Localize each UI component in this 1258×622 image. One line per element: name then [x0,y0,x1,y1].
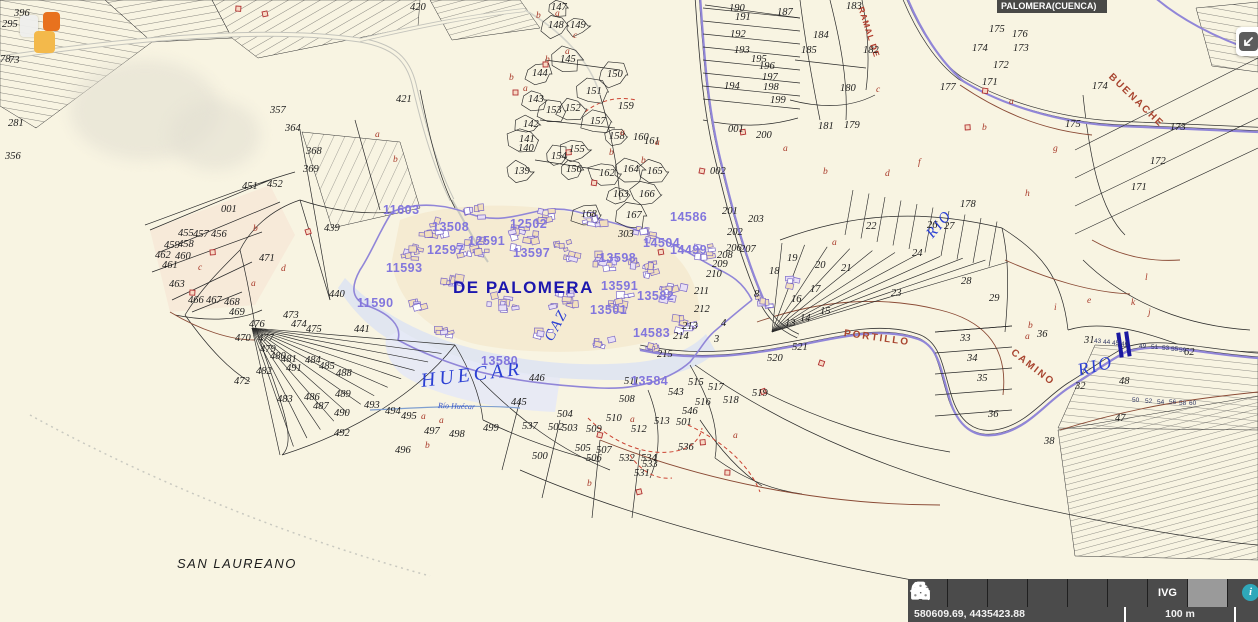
strip-parcel-number-label: 45 [1112,340,1119,347]
status-bar: 580609.69, 4435423.88 100 m [908,607,1258,622]
parcel-number-label: 166 [639,189,655,200]
parcel-number-label: 148 [548,20,564,31]
subparcel-letter-label: a [655,138,660,148]
parcel-number-label: 475 [306,324,322,335]
parcel-number-label: 153 [546,105,562,116]
point-query-button[interactable]: P [1108,579,1147,607]
subparcel-letter-label: a [630,415,635,425]
parcel-number-label: 181 [818,121,834,132]
subparcel-letter-label: g [1053,144,1058,154]
strip-parcel-number-label: 58 [1179,400,1186,407]
subparcel-letter-label: b [609,148,614,158]
parcel-number-label: 456 [211,229,227,240]
parcel-number-label: 32 [1075,381,1086,392]
subparcel-letter-label: d [281,264,286,274]
parcel-number-label: 504 [557,409,573,420]
parcel-number-label: 446 [529,373,545,384]
parcel-number-label: 500 [532,451,548,462]
parcel-number-label: 441 [354,324,370,335]
fullscreen-card [1236,27,1258,56]
watermark-shape [170,100,260,170]
subparcel-letter-label: b [253,224,258,234]
parcel-number-label: 143 [528,94,544,105]
urban-parcel-number-label: 13591 [601,279,638,293]
parcel-number-label: 172 [1150,156,1166,167]
parcel-number-label: 515 [688,377,704,388]
parcel-number-label: 507 [596,445,612,456]
parcel-number-label: 35 [977,373,988,384]
subparcel-letter-label: b [509,73,514,83]
parcel-number-label: 470 [235,333,251,344]
subparcel-letter-label: k [1131,298,1135,308]
parcel-number-label: 141 [519,134,535,145]
strip-parcel-number-label: 46 [1121,341,1128,348]
parcel-number-label: 194 [724,81,740,92]
strip-parcel-number-label: 49 [1139,343,1146,350]
map-viewport[interactable]: DE PALOMERASAN LAUREANOHUECARCAZRIORIORí… [0,0,1258,622]
parcel-number-label: 150 [607,69,623,80]
parcel-number-label: 474 [291,319,307,330]
subparcel-letter-label: j [1148,308,1151,318]
parcel-number-label: 28 [961,276,972,287]
parcel-number-label: 199 [770,95,786,106]
subparcel-letter-label: b [587,479,592,489]
parcel-number-label: 4 [721,318,726,329]
parcel-number-label: 151 [586,86,602,97]
parcel-number-label: 157 [590,116,606,127]
parcel-number-label: 163 [613,189,629,200]
subparcel-letter-label: a [565,47,570,57]
parcel-number-label: 214 [673,331,689,342]
parcel-number-label: 179 [844,120,860,131]
parcel-number-label: 172 [993,60,1009,71]
parcel-number-label: 537 [522,421,538,432]
parcel-number-label: 22 [866,221,877,232]
parcel-number-label: 466 [188,295,204,306]
parcel-number-label: 26 [927,220,938,231]
parcel-number-label: 457 [193,229,209,240]
parcel-number-label: 471 [259,253,275,264]
subparcel-letter-label: a [1009,97,1014,107]
cartography-button[interactable] [1188,579,1227,607]
urban-parcel-number-label: 13598 [599,251,636,265]
measure-button[interactable] [1028,579,1067,607]
strip-parcel-number-label: 43 [1094,338,1101,345]
parcel-number-label: 19 [787,253,798,264]
parcel-number-label: 178 [960,199,976,210]
parcel-number-label: 482 [256,366,272,377]
parcel-number-label: 002 [710,166,726,177]
subparcel-letter-label: f [918,158,921,168]
urban-parcel-number-label: 11593 [386,261,423,275]
parcel-number-label: 149 [570,20,586,31]
urban-parcel-number-label: 13582 [637,289,674,303]
parcel-number-label: 452 [267,179,283,190]
parcel-number-label: 36 [988,409,999,420]
parcel-number-label: 467 [206,295,222,306]
urban-parcel-number-label: 13580 [481,354,518,368]
parcel-number-label: 197 [762,72,778,83]
subparcel-letter-label: b [393,155,398,165]
parcel-number-label: 18 [769,266,780,277]
parcel-number-label: 490 [334,408,350,419]
subparcel-letter-label: c [198,263,202,273]
urban-parcel-number-label: 13508 [432,220,469,234]
subparcel-letter-label: a [421,412,426,422]
parcel-number-label: 503 [562,423,578,434]
parcel-number-label: 543 [668,387,684,398]
subparcel-letter-label: b [1028,321,1033,331]
parcel-number-label: 177 [940,82,956,93]
urban-parcel-number-label: 11590 [357,296,394,310]
parcel-number-label: 546 [682,406,698,417]
parcel-number-label: 445 [511,397,527,408]
parcel-number-label: 155 [569,144,585,155]
parcel-number-label: 508 [619,394,635,405]
subparcel-letter-label: a [733,431,738,441]
parcel-number-label: 195 [751,54,767,65]
parcel-number-label: 190 [729,3,745,14]
parcel-number-label: 185 [801,45,817,56]
diagonal-arrow-icon [1239,32,1258,51]
parcel-number-label: 202 [727,227,743,238]
parcel-number-label: 34 [967,353,978,364]
parcel-number-label: 439 [324,223,340,234]
parcel-number-label: 193 [734,45,750,56]
subparcel-letter-label: a [439,416,444,426]
parcel-number-label: 476 [249,319,265,330]
parcel-number-label: 496 [395,445,411,456]
parcel-number-label: 215 [657,349,673,360]
parcel-number-label: 15 [820,306,831,317]
parcel-number-label: 493 [364,400,380,411]
print-button[interactable] [1068,579,1107,607]
parcel-number-label: 396 [14,8,30,19]
parcel-number-label: 210 [706,269,722,280]
parcel-number-label: 33 [960,333,971,344]
subparcel-letter-label: i [1054,303,1057,313]
parcel-number-label: 187 [777,7,793,18]
parcel-number-label: 536 [678,442,694,453]
ivg-button-label: IVG [1158,587,1177,599]
parcel-number-label: 421 [396,94,412,105]
parcel-number-label: 20 [815,260,826,271]
subparcel-letter-label: b [982,123,987,133]
strip-parcel-number-label: 55 [1171,346,1178,353]
parcel-number-label: 142 [523,119,539,130]
map-marker-yellow [34,31,55,53]
parcel-number-label: 487 [313,401,329,412]
subparcel-letter-label: a [783,144,788,154]
info-circle-icon: i [1242,584,1258,601]
parcel-number-label: 420 [410,2,426,13]
parcel-number-label: 23 [891,288,902,299]
zoom-search-button[interactable] [948,579,987,607]
subparcel-letter-label: a [832,238,837,248]
status-bar-spacer [1236,607,1258,622]
parcel-number-label: 3 [714,334,719,345]
parcel-number-label: 176 [1012,29,1028,40]
subparcel-letter-label: b [536,11,541,21]
subparcel-letter-label: a [620,128,625,138]
subparcel-letter-label: h [1025,189,1030,199]
place-label: SAN LAUREANO [177,556,297,571]
urban-parcel-number-label: 12597 [427,243,464,257]
subparcel-letter-label: e [1087,296,1091,306]
parcel-number-label: 495 [401,411,417,422]
parcel-number-label: 184 [813,30,829,41]
urban-parcel-number-label: 14583 [633,326,670,340]
parcel-number-label: 173 [1013,43,1029,54]
parcel-number-label: 001 [728,124,744,135]
parcel-number-label: 518 [723,395,739,406]
parcel-number-label: 369 [303,164,319,175]
parcel-number-label: 36 [1037,329,1048,340]
collapse-map-button[interactable] [1239,32,1258,51]
parcel-number-label: 520 [767,353,783,364]
parcel-number-label: 458 [178,239,194,250]
parcel-number-label: 492 [334,428,350,439]
subparcel-letter-label: b [823,167,828,177]
subparcel-letter-label: a [251,279,256,289]
subparcel-letter-label: a [375,130,380,140]
parcel-number-label: 211 [694,286,709,297]
parcel-number-label: 517 [708,382,724,393]
parcel-number-label: 29 [989,293,1000,304]
parcel-number-label: 156 [566,164,582,175]
parcel-number-label: 534 [641,453,657,464]
subparcel-letter-label: b [641,156,646,166]
parcel-number-label: 168 [581,209,597,220]
map-toolbar: P IVG i [908,579,1258,607]
parcel-number-label: 27 [944,221,955,232]
parcel-number-label: 295 [2,19,18,30]
parcel-number-label: 477 [258,333,274,344]
urban-parcel-number-label: 14499 [670,243,707,257]
parcel-number-label: 154 [551,151,567,162]
parcel-number-label: 512 [631,424,647,435]
parcel-number-label: 16 [791,294,802,305]
parcel-number-label: 521 [792,342,808,353]
parcel-number-label: 485 [319,361,335,372]
urban-parcel-number-label: 13597 [513,246,550,260]
strip-parcel-number-label: 50 [1132,397,1139,404]
urban-parcel-number-label: 12591 [468,234,505,248]
scale-bar: 100 m [1124,607,1236,622]
place-label: DE PALOMERA [453,278,594,298]
parcel-number-label: 13 [785,318,796,329]
parcel-number-label: 159 [618,101,634,112]
parcel-number-label: 21 [841,263,852,274]
subparcel-letter-label: b [545,55,550,65]
urban-parcel-number-label: 12502 [510,217,547,231]
parcel-number-label: 164 [623,164,639,175]
subparcel-letter-label: l [1145,273,1148,283]
parcel-number-label: 519 [752,388,768,399]
ivg-button[interactable]: IVG [1148,579,1187,607]
parcel-number-label: 171 [1131,182,1147,193]
parcel-number-label: 498 [449,429,465,440]
layers-button[interactable] [988,579,1027,607]
map-marker-orange [43,12,60,31]
strip-parcel-number-label: 44 [1103,339,1110,346]
parcel-number-label: 001 [221,204,237,215]
subparcel-letter-label: a [523,84,528,94]
dice-icon [908,579,933,603]
parcel-number-label: 165 [647,166,663,177]
parcel-number-label: 501 [676,417,692,428]
parcel-number-label: 207 [740,244,756,255]
parcel-number-label: 451 [242,181,258,192]
parcel-number-label: 364 [285,123,301,134]
subparcel-letter-label: d [885,169,890,179]
parcel-number-label: 357 [270,105,286,116]
parcel-number-label: 8 [754,289,759,300]
parcel-number-label: 48 [1119,376,1130,387]
parcel-number-label: 440 [329,289,345,300]
parcel-number-label: 31 [1084,335,1095,346]
parcel-number-label: 17 [810,284,821,295]
parcel-number-label: 174 [972,43,988,54]
parcel-number-label: 175 [989,24,1005,35]
strip-parcel-number-label: 60 [1189,400,1196,407]
parcel-number-label: 47 [1115,413,1126,424]
parcel-number-label: 203 [748,214,764,225]
parcel-number-label: 139 [514,166,530,177]
municipality-title-bar: PALOMERA(CUENCA) [997,0,1107,13]
parcel-number-label: 200 [756,130,772,141]
parcel-number-label: 368 [306,146,322,157]
subparcel-letter-label: c [573,31,577,41]
parcel-number-label: 488 [336,368,352,379]
parcel-number-label: 510 [606,413,622,424]
parcel-number-label: 356 [5,151,21,162]
strip-parcel-number-label: 52 [1145,398,1152,405]
parcel-number-label: 469 [229,307,245,318]
strip-parcel-number-label: 51 [1151,344,1158,351]
strip-parcel-number-label: 53 [1162,345,1169,352]
parcel-number-label: 472 [234,376,250,387]
parcel-number-label: 281 [8,118,24,129]
help-button[interactable]: i [1228,579,1258,607]
parcel-number-label: 497 [424,426,440,437]
parcel-number-label: 513 [654,416,670,427]
parcel-number-label: 192 [730,29,746,40]
cursor-coordinates: 580609.69, 4435423.88 [908,607,1124,622]
parcel-number-label: 483 [277,394,293,405]
parcel-number-label: 303 [618,229,634,240]
parcel-number-label: 198 [763,82,779,93]
strip-parcel-number-label: 56 [1169,399,1176,406]
parcel-number-label: 73 [9,55,20,66]
parcel-number-label: 171 [982,77,998,88]
urban-parcel-number-label: 14586 [670,210,707,224]
parcel-number-label: 509 [586,424,602,435]
parcel-number-label: 38 [1044,436,1055,447]
subparcel-letter-label: c [876,85,880,95]
parcel-number-label: 491 [286,363,302,374]
parcel-number-label: 494 [385,406,401,417]
parcel-number-label: 499 [483,423,499,434]
subparcel-letter-label: b [425,441,430,451]
parcel-number-label: 532 [619,453,635,464]
parcel-number-label: 144 [532,68,548,79]
subparcel-letter-label: a [555,9,560,19]
urban-parcel-number-label: 13584 [631,374,668,388]
parcel-number-label: 180 [840,83,856,94]
parcel-number-label: 167 [626,210,642,221]
parcel-number-label: 212 [694,304,710,315]
parcel-number-label: 24 [912,248,923,259]
parcel-number-label: 489 [335,389,351,400]
parcel-number-label: 173 [1170,122,1186,133]
parcel-number-label: 152 [565,103,581,114]
subparcel-letter-label: a [1025,332,1030,342]
strip-parcel-number-label: 59 [1179,347,1186,354]
parcel-number-label: 455 [178,228,194,239]
parcel-number-label: 14 [800,313,811,324]
parcel-number-label: 183 [846,1,862,12]
urban-parcel-number-label: 11603 [383,203,420,217]
place-label: Río Huécar [438,401,475,411]
parcel-number-label: 174 [1092,81,1108,92]
parcel-number-label: 463 [169,279,185,290]
strip-parcel-number-label: 54 [1157,399,1164,406]
parcel-number-label: 461 [162,260,178,271]
urban-parcel-number-label: 13501 [590,303,627,317]
parcel-number-label: 201 [722,206,738,217]
parcel-number-label: 175 [1065,119,1081,130]
parcel-number-label: 162 [599,168,615,179]
parcel-number-label: 182 [863,45,879,56]
